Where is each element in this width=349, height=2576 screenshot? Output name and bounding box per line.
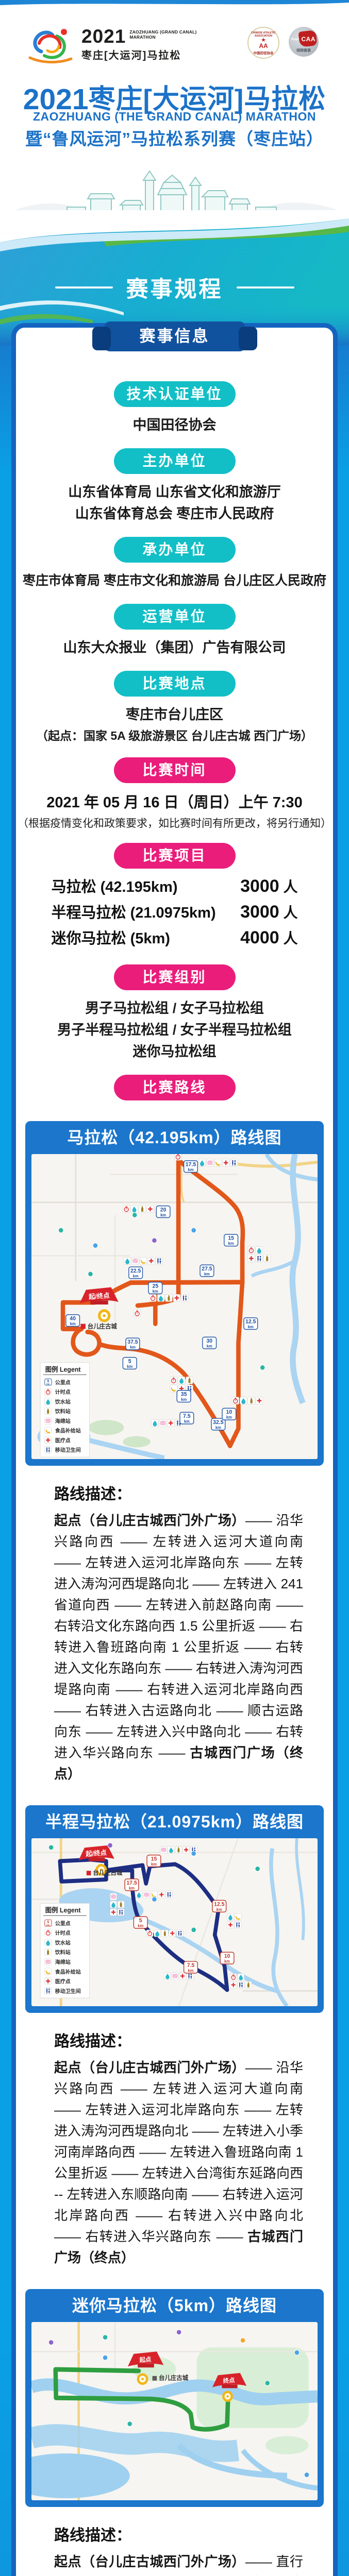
legend-item: 公里点	[55, 1920, 71, 1927]
cert-unit-line: 中国田径协会	[16, 414, 333, 436]
legend-km-unit: km	[46, 1924, 49, 1926]
start-label: 起点	[139, 2355, 152, 2364]
pill-events: 比赛项目	[114, 843, 236, 869]
map-legend: 图例 Legent 5km 公里点 计时点 饮水站 饮料站 海绵站 食品补给站 …	[40, 1903, 89, 1998]
group-line-1: 男子马拉松组 / 女子马拉松组	[16, 997, 333, 1019]
finish-label: 终点	[223, 2377, 235, 2385]
half-route-desc: 路线描述： 起点（台儿庄古城西门外广场）—— 沿华兴路向西 —— 左转进入运河大…	[54, 2028, 303, 2268]
tab-left-ear	[92, 327, 111, 350]
event-name-text: 马拉松	[52, 879, 101, 895]
badge1-aa-mark: AA	[248, 43, 278, 49]
caa-medal-badge: Road Race CAA 铜牌赛事	[289, 27, 319, 57]
event-row: 迷你马拉松 (5km) 4000 人	[52, 926, 298, 952]
km-unit: km	[248, 1325, 254, 1329]
info-tab-label: 赛事信息	[140, 327, 210, 345]
km-unit: km	[130, 1345, 136, 1349]
logo-year: 2021	[81, 28, 126, 45]
event-distance: (42.195km)	[101, 879, 178, 895]
map-park	[89, 1420, 124, 1435]
location-note: （起点：国家 5A 级旅游景区 台儿庄古城 西门广场）	[16, 726, 333, 745]
km-unit: km	[226, 1415, 232, 1419]
km-unit: km	[228, 1241, 234, 1246]
event-row: 马拉松 (42.195km) 3000 人	[52, 875, 298, 901]
map-park	[123, 1436, 150, 1448]
route-desc-label: 路线描述：	[54, 1481, 303, 1504]
logo-en-line1: ZAOZHUANG (GRAND CANAL)	[129, 29, 196, 35]
half-marathon-route-map: 15km 17.5km 12.5km 5km 7.5km 10km 起/终点 台…	[31, 1838, 318, 2006]
pill-host-unit: 主办单位	[114, 448, 236, 474]
logo-text-block: 2021 ZAOZHUANG (GRAND CANAL) MARATHON 枣庄…	[81, 28, 197, 62]
event-name-text: 半程马拉松	[52, 905, 130, 921]
marathon-map-title: 马拉松（42.195km）路线图	[31, 1121, 318, 1154]
pill-organizer-unit: 承办单位	[114, 537, 236, 563]
marathon-map-panel: 马拉松（42.195km）路线图	[25, 1121, 324, 1466]
km-unit: km	[188, 1167, 193, 1172]
group-line-3: 迷你马拉松组	[16, 1041, 333, 1062]
legend-item: 医疗点	[55, 1437, 71, 1444]
km-unit: km	[151, 1862, 157, 1867]
km-unit: km	[217, 1907, 222, 1912]
pill-groups: 比赛组别	[114, 964, 236, 990]
host-line-1: 山东省体育局 山东省文化和旅游厅	[16, 481, 333, 503]
legend-item: 海绵站	[55, 1959, 71, 1965]
city-label: 台儿庄古城	[88, 1323, 117, 1330]
pill-cert-unit: 技术认证单位	[114, 381, 236, 407]
event-count-unit: 人	[279, 930, 298, 946]
legend-item: 计时点	[55, 1389, 71, 1396]
service-icons	[123, 1154, 271, 1427]
mini-marathon-map-title: 迷你马拉松（5km）路线图	[31, 2289, 318, 2322]
series-subtitle: 暨“鲁风运河”马拉松系列赛（枣庄站）	[0, 125, 349, 150]
km-marker: 5	[128, 1358, 131, 1364]
city-label: 台儿庄古城	[93, 1869, 123, 1876]
event-name: 马拉松 (42.195km)	[52, 875, 178, 896]
km-marker: 5	[139, 1918, 142, 1924]
route-desc-start: 起点（台儿庄古城西门外广场）	[54, 2060, 245, 2075]
legend-item: 移动卫生间	[55, 1447, 81, 1453]
km-unit: km	[188, 1968, 193, 1973]
km-marker: 10	[226, 1409, 232, 1415]
half-marathon-map-panel: 半程马拉松（21.0975km）路线图	[25, 1805, 324, 2013]
caa-association-badge: CHINESE ATHLETIC ASSOCIATION ★ AA 中国田径协会	[247, 27, 279, 59]
km-unit: km	[184, 1419, 190, 1423]
start-finish-label: 起/终点	[88, 1292, 110, 1301]
map-legend: 图例 Legent 5km 公里点 计时点 饮水站 饮料站 海绵站 食品补给站 …	[40, 1363, 89, 1458]
tab-right-ear	[239, 327, 257, 350]
km-marker: 27.5	[202, 1266, 212, 1272]
legend-item: 饮水站	[55, 1939, 71, 1946]
mini-marathon-map-panel: 迷你马拉松（5km）路线图	[25, 2289, 324, 2507]
event-logo-row: 2021 ZAOZHUANG (GRAND CANAL) MARATHON 枣庄…	[26, 27, 325, 66]
start-finish-label: 起/终点	[85, 1849, 107, 1858]
legend-item: 食品补给站	[55, 1969, 81, 1975]
logo-en-line2: MARATHON	[129, 35, 156, 40]
half-marathon-map-title: 半程马拉松（21.0975km）路线图	[31, 1805, 318, 1838]
main-title-en: ZAOZHUANG (THE GRAND CANAL) MARATHON	[0, 110, 349, 124]
km-unit: km	[133, 1274, 139, 1278]
location-note-bold: 台儿庄古城 西门广场	[191, 729, 301, 742]
city-label: 台儿庄古城	[159, 2375, 188, 2382]
route-desc-text: 起点（台儿庄古城西门外广场）—— 直行沿华兴路向西 —— 左转进入运河大道向南 …	[54, 2551, 303, 2576]
km-unit: km	[215, 1425, 221, 1430]
km-marker: 32.5	[213, 1419, 223, 1426]
km-marker: 22.5	[130, 1268, 141, 1274]
badge2-medal-text: 铜牌赛事	[289, 48, 319, 53]
badge1-cn-text: 中国田径协会	[248, 50, 278, 55]
event-count-number: 4000	[240, 928, 279, 947]
group-line-2: 男子半程马拉松组 / 女子半程马拉松组	[16, 1019, 333, 1041]
legend-title: 图例 Legent	[45, 1906, 81, 1914]
legend-item: 饮料站	[55, 1408, 71, 1415]
banner-right-line	[237, 286, 294, 289]
marathon-logo-icon	[26, 25, 77, 66]
km-marker: 17.5	[126, 1880, 137, 1886]
organizer-line: 枣庄市体育局 枣庄市文化和旅游局 台儿庄区人民政府	[16, 570, 333, 591]
legend-item: 饮水站	[55, 1398, 71, 1405]
legend-item: 海绵站	[55, 1418, 71, 1425]
location-note-post: ）	[301, 729, 313, 742]
marathon-route-desc: 路线描述： 起点（台儿庄古城西门外广场）—— 沿华兴路向西 —— 左转进入运河大…	[54, 1481, 303, 1785]
legend-item: 医疗点	[55, 1978, 71, 1985]
route-desc-label: 路线描述：	[54, 2522, 303, 2545]
legend-km-unit: km	[46, 1383, 49, 1385]
km-marker: 25	[152, 1283, 158, 1289]
km-unit: km	[153, 1289, 158, 1294]
legend-item: 食品补给站	[55, 1428, 81, 1434]
km-unit: km	[70, 1321, 76, 1326]
banner-left-line	[55, 286, 113, 289]
km-marker: 35	[181, 1392, 187, 1398]
top-wave-decoration	[0, 0, 349, 7]
km-unit: km	[160, 1213, 166, 1217]
km-marker: 15	[151, 1856, 157, 1862]
pill-location: 比赛地点	[114, 671, 236, 697]
km-marker: 12.5	[214, 1901, 224, 1907]
events-list: 马拉松 (42.195km) 3000 人 半程马拉松 (21.0975km) …	[52, 875, 298, 952]
operator-line: 山东大众报业（集团）广告有限公司	[16, 637, 333, 658]
section-banner-title: 赛事规程	[126, 272, 223, 303]
legend-item: 移动卫生间	[55, 1988, 81, 1994]
km-marker: 7.5	[187, 1962, 195, 1969]
location-line: 枣庄市台儿庄区	[16, 704, 333, 725]
event-name-text: 迷你马拉松	[52, 930, 130, 947]
pill-operator-unit: 运营单位	[114, 604, 236, 630]
km-marker: 10	[224, 1953, 230, 1959]
km-marker: 12.5	[245, 1318, 256, 1325]
legend-item: 公里点	[55, 1379, 71, 1386]
event-count-unit: 人	[279, 879, 298, 895]
route-desc-start: 起点（台儿庄古城西门外广场）	[54, 2554, 245, 2569]
poster-page: 2021 ZAOZHUANG (GRAND CANAL) MARATHON 枣庄…	[0, 0, 349, 2576]
km-marker: 30	[206, 1338, 212, 1344]
event-distance: (5km)	[130, 930, 170, 947]
route-desc-body: —— 沿华兴路向西 —— 左转进入运河大道向南 —— 左转进入运河北岸路向东 —…	[54, 1513, 303, 1760]
badge2-caa-mark: CAA	[302, 36, 316, 43]
section-banner: 赛事规程	[0, 272, 349, 303]
info-card: 赛事信息 技术认证单位 中国田径协会 主办单位 山东省体育局 山东省文化和旅游厅…	[11, 323, 338, 2576]
event-row: 半程马拉松 (21.0975km) 3000 人	[52, 901, 298, 926]
info-tab: 赛事信息	[105, 321, 245, 351]
event-name: 半程马拉松 (21.0975km)	[52, 901, 216, 922]
logo-title-cn: 枣庄[大运河]马拉松	[81, 47, 197, 62]
time-note: （根据疫情变化和政策要求，如比赛时间有所更改，将另行通知）	[16, 815, 333, 831]
km-marker: 7.5	[183, 1413, 191, 1419]
km-unit: km	[138, 1923, 143, 1928]
event-distance: (21.0975km)	[130, 905, 216, 921]
location-note-pre: （起点：国家 5A 级旅游景区	[36, 729, 191, 742]
event-count-number: 3000	[240, 902, 279, 922]
pill-routes: 比赛路线	[114, 1075, 236, 1100]
km-unit: km	[207, 1344, 212, 1348]
event-count: 4000 人	[240, 927, 297, 948]
start-finish-marker: 起/终点 台儿庄古城	[79, 1287, 118, 1330]
event-name: 迷你马拉松 (5km)	[52, 926, 170, 948]
legend-item: 饮料站	[55, 1949, 71, 1956]
event-count-unit: 人	[279, 905, 298, 921]
legend-item: 计时点	[55, 1930, 71, 1937]
pill-time: 比赛时间	[114, 757, 236, 783]
event-count-number: 3000	[240, 876, 279, 896]
km-unit: km	[181, 1397, 187, 1402]
km-marker: 37.5	[127, 1339, 138, 1345]
mini-route-map: 起点 终点 台儿庄古城	[31, 2322, 318, 2500]
event-count: 3000 人	[240, 876, 297, 896]
km-marker: 17.5	[186, 1162, 196, 1168]
mini-route-desc: 路线描述： 起点（台儿庄古城西门外广场）—— 直行沿华兴路向西 —— 左转进入运…	[54, 2522, 303, 2576]
km-marker: 40	[70, 1315, 76, 1321]
route-desc-body: —— 沿华兴路向西 —— 左转进入运河大道向南 —— 左转进入运河北岸路向东 —…	[54, 2060, 303, 2244]
km-unit: km	[127, 1364, 132, 1369]
route-desc-start: 起点（台儿庄古城西门外广场）	[54, 1513, 245, 1528]
route-desc-text: 起点（台儿庄古城西门外广场）—— 沿华兴路向西 —— 左转进入运河大道向南 ——…	[54, 1510, 303, 1785]
route-desc-label: 路线描述：	[54, 2028, 303, 2051]
km-marker: 15	[228, 1235, 234, 1242]
host-line-2: 山东省体育总会 枣庄市人民政府	[16, 503, 333, 524]
map-rivers	[59, 1838, 304, 2006]
time-line: 2021 年 05 月 16 日（周日）上午 7:30	[16, 790, 333, 812]
route-desc-text: 起点（台儿庄古城西门外广场）—— 沿华兴路向西 —— 左转进入运河大道向南 ——…	[54, 2057, 303, 2268]
marathon-route-map: 17.5km 20km 15km 22.5km 27.5km 25km 12.5…	[31, 1154, 318, 1459]
legend-title: 图例 Legent	[45, 1365, 81, 1373]
km-marker: 20	[160, 1207, 167, 1213]
event-count: 3000 人	[240, 902, 297, 922]
km-unit: km	[129, 1886, 135, 1890]
logo-subtitle-en: ZAOZHUANG (GRAND CANAL) MARATHON	[129, 29, 196, 40]
km-unit: km	[204, 1272, 210, 1276]
km-unit: km	[224, 1959, 230, 1963]
